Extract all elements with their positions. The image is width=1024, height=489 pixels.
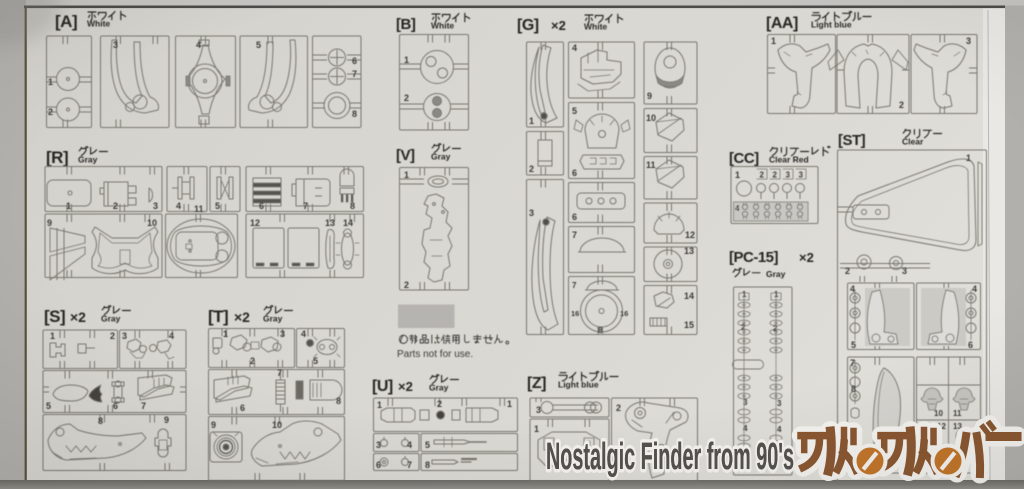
svg-text:2: 2 <box>760 171 765 180</box>
svg-text:9: 9 <box>211 420 216 430</box>
svg-text:14: 14 <box>343 218 353 228</box>
svg-text:7: 7 <box>352 69 357 79</box>
svg-text:3: 3 <box>536 405 541 415</box>
svg-text:Parts not for use.: Parts not for use. <box>397 349 473 360</box>
svg-text:3: 3 <box>529 208 534 218</box>
svg-text:1: 1 <box>742 290 747 299</box>
svg-text:7: 7 <box>572 230 577 240</box>
svg-text:Gray: Gray <box>429 383 449 393</box>
svg-text:13: 13 <box>684 246 694 256</box>
svg-text:13: 13 <box>325 218 335 228</box>
svg-text:6: 6 <box>113 401 118 411</box>
svg-text:2: 2 <box>113 201 118 211</box>
svg-text:White: White <box>87 19 110 29</box>
svg-text:3: 3 <box>376 440 381 450</box>
svg-text:[R]: [R] <box>46 148 68 167</box>
svg-text:6: 6 <box>352 56 357 66</box>
svg-text:[U]: [U] <box>372 378 393 395</box>
svg-text:8: 8 <box>851 384 856 394</box>
svg-text:4: 4 <box>972 284 977 294</box>
svg-text:9: 9 <box>164 415 169 425</box>
svg-text:16: 16 <box>571 309 579 318</box>
svg-text:2: 2 <box>616 403 621 413</box>
svg-text:11: 11 <box>194 204 204 214</box>
svg-text:3: 3 <box>280 329 285 339</box>
svg-text:2: 2 <box>48 107 53 117</box>
svg-text:5: 5 <box>851 340 856 350</box>
svg-text:Light blue: Light blue <box>558 380 599 390</box>
svg-text:8: 8 <box>336 396 341 406</box>
svg-text:Gray: Gray <box>101 314 121 324</box>
svg-text:6: 6 <box>376 460 381 470</box>
svg-text:5: 5 <box>425 440 430 450</box>
svg-text:×2: ×2 <box>398 379 413 394</box>
svg-text:7: 7 <box>277 368 282 378</box>
svg-text:5: 5 <box>215 201 220 211</box>
svg-text:6: 6 <box>572 212 577 222</box>
svg-text:1: 1 <box>404 55 409 65</box>
svg-text:9: 9 <box>647 91 652 101</box>
svg-text:Gray: Gray <box>766 269 786 279</box>
svg-text:4: 4 <box>301 329 306 339</box>
svg-text:4: 4 <box>196 40 201 50</box>
svg-text:2: 2 <box>773 171 778 180</box>
svg-text:2: 2 <box>404 280 409 290</box>
svg-text:4: 4 <box>735 204 740 213</box>
svg-text:6: 6 <box>240 403 245 413</box>
svg-text:7: 7 <box>407 460 412 470</box>
svg-text:[T]: [T] <box>208 307 228 326</box>
svg-text:16: 16 <box>620 309 628 318</box>
svg-text:1: 1 <box>50 331 55 341</box>
svg-text:1: 1 <box>529 116 534 126</box>
svg-text:8: 8 <box>98 416 103 426</box>
svg-text:14: 14 <box>684 291 694 301</box>
svg-text:4: 4 <box>169 331 174 341</box>
svg-text:7: 7 <box>303 201 308 211</box>
svg-text:8: 8 <box>352 109 357 119</box>
svg-text:3: 3 <box>113 40 118 50</box>
svg-text:×2: ×2 <box>234 309 250 325</box>
svg-text:2: 2 <box>437 399 442 409</box>
svg-text:[G]: [G] <box>517 17 539 34</box>
svg-text:7: 7 <box>850 358 855 368</box>
svg-text:1: 1 <box>223 329 228 339</box>
svg-text:1: 1 <box>966 153 971 163</box>
svg-text:6: 6 <box>968 340 973 350</box>
svg-text:11: 11 <box>646 160 656 170</box>
svg-text:1: 1 <box>771 36 776 46</box>
svg-text:1: 1 <box>404 170 409 180</box>
svg-text:10: 10 <box>934 409 943 418</box>
svg-text:3: 3 <box>122 331 127 341</box>
svg-text:Clear: Clear <box>902 137 924 147</box>
svg-text:5: 5 <box>313 356 318 366</box>
svg-text:8: 8 <box>350 201 355 211</box>
svg-text:2: 2 <box>529 164 534 174</box>
svg-text:4: 4 <box>572 43 577 53</box>
svg-text:15: 15 <box>684 320 694 330</box>
svg-text:1: 1 <box>66 201 71 211</box>
svg-text:3: 3 <box>153 201 158 211</box>
svg-text:9: 9 <box>47 218 52 228</box>
svg-text:1: 1 <box>534 424 539 434</box>
svg-text:×2: ×2 <box>799 250 814 265</box>
svg-text:4: 4 <box>176 201 181 211</box>
svg-text:[AA]: [AA] <box>766 15 798 32</box>
svg-text:Light blue: Light blue <box>811 20 852 30</box>
svg-text:10: 10 <box>646 113 656 123</box>
svg-text:Gray: Gray <box>431 152 451 162</box>
svg-text:3: 3 <box>799 171 804 180</box>
svg-text:1: 1 <box>735 170 740 180</box>
svg-text:8: 8 <box>598 326 603 335</box>
svg-text:5: 5 <box>46 401 51 411</box>
svg-text:2: 2 <box>250 356 255 366</box>
svg-text:[PC-15]: [PC-15] <box>729 249 779 266</box>
svg-text:1: 1 <box>774 290 779 299</box>
svg-text:[S]: [S] <box>44 307 65 326</box>
svg-text:Clear Red: Clear Red <box>769 155 809 165</box>
svg-text:7: 7 <box>141 401 146 411</box>
svg-text:8: 8 <box>425 460 430 470</box>
svg-text:12: 12 <box>685 230 695 240</box>
svg-text:4: 4 <box>850 284 855 294</box>
svg-text:2: 2 <box>845 266 850 276</box>
svg-text:×2: ×2 <box>70 309 86 325</box>
svg-text:3: 3 <box>786 171 791 180</box>
svg-text:2: 2 <box>404 93 409 103</box>
svg-text:2: 2 <box>741 323 746 332</box>
svg-text:4: 4 <box>407 440 412 450</box>
svg-text:×2: ×2 <box>551 18 566 33</box>
svg-text:4: 4 <box>777 425 782 434</box>
svg-text:Gray: Gray <box>78 155 98 165</box>
svg-text:3: 3 <box>902 266 907 276</box>
svg-text:White: White <box>584 22 607 32</box>
svg-text:7: 7 <box>572 281 577 290</box>
svg-text:10: 10 <box>147 218 157 228</box>
svg-text:White: White <box>431 21 454 31</box>
svg-text:Gray: Gray <box>263 314 283 324</box>
svg-text:11: 11 <box>953 409 962 418</box>
svg-text:12: 12 <box>250 218 260 228</box>
svg-text:1: 1 <box>507 399 512 409</box>
svg-text:6: 6 <box>572 168 577 178</box>
svg-text:3: 3 <box>966 36 971 46</box>
svg-text:Nostalgic Finder from 90's: Nostalgic Finder from 90's <box>546 436 794 478</box>
svg-text:[A]: [A] <box>55 12 77 31</box>
svg-text:6: 6 <box>259 201 264 211</box>
svg-text:3: 3 <box>777 399 782 408</box>
svg-text:2: 2 <box>773 324 778 333</box>
svg-text:[B]: [B] <box>396 16 416 33</box>
svg-text:2: 2 <box>899 100 904 110</box>
svg-text:1: 1 <box>48 77 53 87</box>
svg-text:[ST]: [ST] <box>838 132 866 149</box>
svg-text:[Z]: [Z] <box>527 375 546 392</box>
svg-text:10: 10 <box>272 420 282 430</box>
svg-text:1: 1 <box>377 400 382 410</box>
svg-text:[V]: [V] <box>396 147 415 164</box>
svg-text:5: 5 <box>572 106 577 116</box>
svg-text:2: 2 <box>110 331 115 341</box>
svg-text:[CC]: [CC] <box>729 150 759 167</box>
svg-text:5: 5 <box>256 40 261 50</box>
